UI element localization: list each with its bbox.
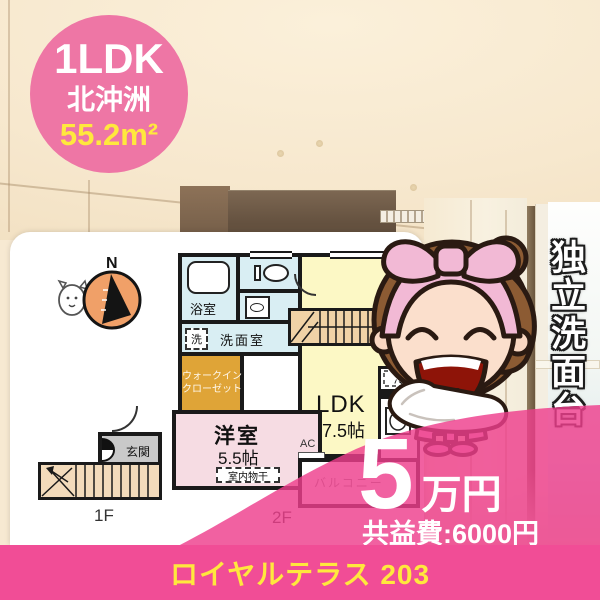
- rental-flyer: N 浴室 洗 洗面室 ウォークイン クローゼット: [0, 0, 600, 600]
- price-amount: 5: [358, 424, 414, 524]
- property-banner: ロイヤルテラス 203: [0, 545, 600, 600]
- price-block: 5 万円: [358, 424, 502, 524]
- badge-size: 55.2m²: [60, 118, 158, 153]
- badge-layout: 1LDK: [54, 35, 164, 82]
- property-name: ロイヤルテラス 203: [170, 553, 430, 593]
- badge-area-name: 北沖洲: [67, 84, 151, 115]
- summary-badge: 1LDK 北沖洲 55.2m²: [30, 15, 188, 173]
